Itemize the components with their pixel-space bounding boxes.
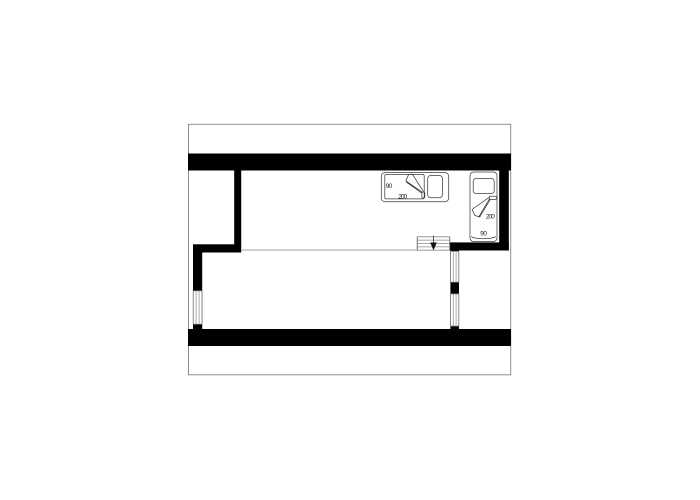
svg-text:90: 90 bbox=[386, 183, 393, 190]
svg-text:200: 200 bbox=[398, 193, 407, 200]
svg-text:200: 200 bbox=[486, 214, 495, 221]
svg-text:90: 90 bbox=[480, 230, 487, 237]
